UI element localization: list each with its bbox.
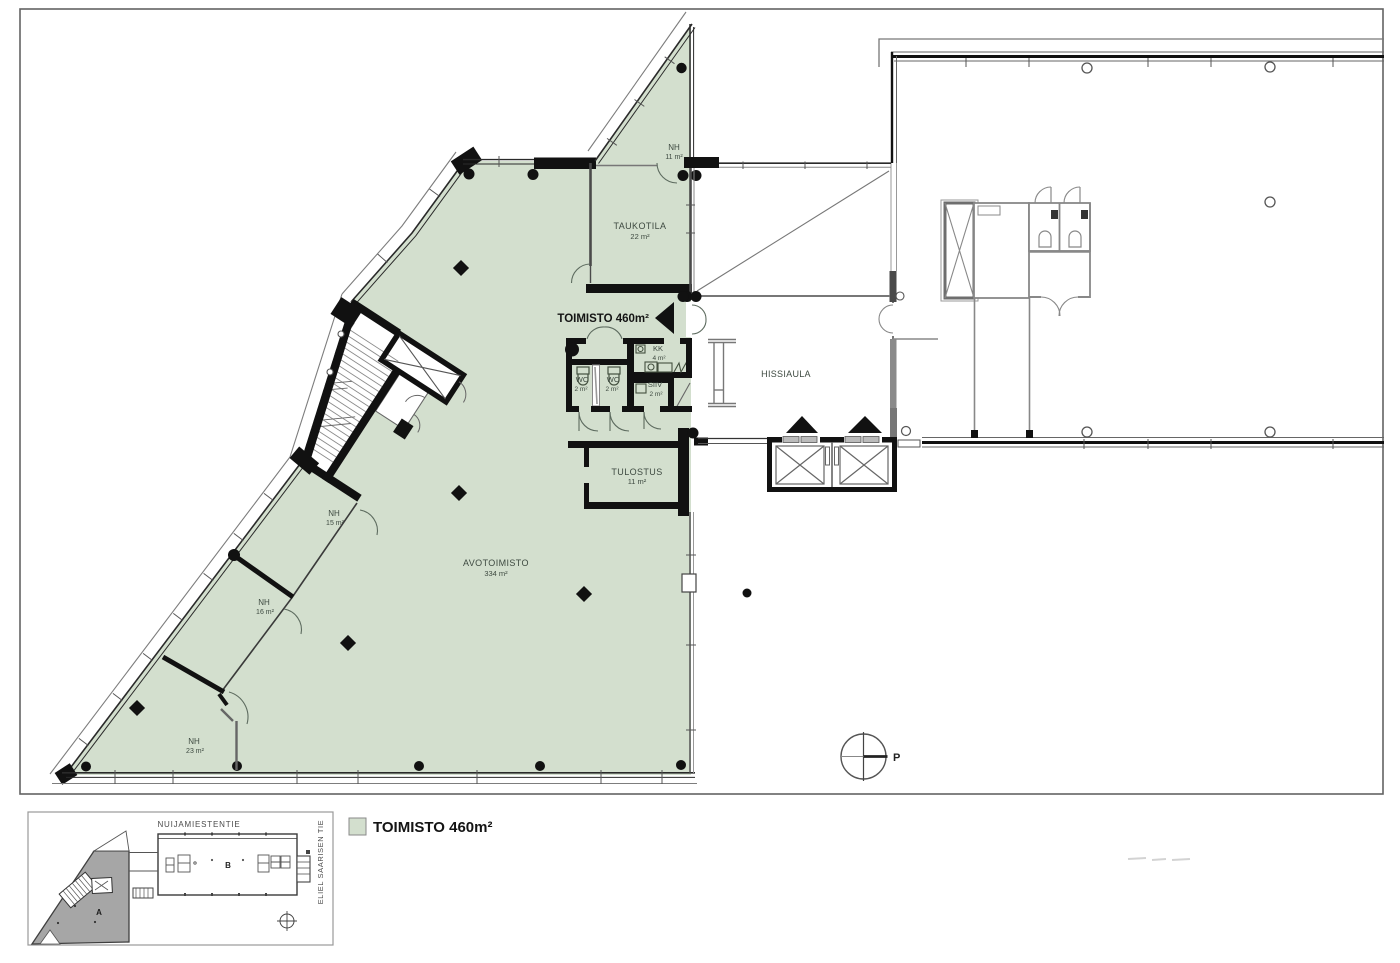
- svg-text:11 m²: 11 m²: [628, 477, 647, 486]
- svg-text:WC: WC: [607, 375, 620, 384]
- svg-text:NH: NH: [668, 143, 680, 152]
- svg-text:P: P: [893, 752, 900, 764]
- svg-text:16 m²: 16 m²: [256, 609, 275, 616]
- svg-text:NH: NH: [188, 737, 200, 746]
- svg-text:ELIEL SAARISEN TIE: ELIEL SAARISEN TIE: [316, 820, 325, 905]
- svg-text:AVOTOIMISTO: AVOTOIMISTO: [463, 558, 529, 568]
- svg-text:334 m²: 334 m²: [484, 569, 508, 578]
- svg-text:HISSIAULA: HISSIAULA: [761, 369, 811, 379]
- svg-text:2 m²: 2 m²: [650, 391, 664, 398]
- svg-text:KK: KK: [653, 344, 663, 353]
- svg-text:4 m²: 4 m²: [653, 355, 667, 362]
- svg-text:TAUKOTILA: TAUKOTILA: [614, 221, 667, 231]
- svg-text:WC: WC: [576, 375, 589, 384]
- svg-text:2 m²: 2 m²: [575, 386, 589, 393]
- svg-text:22 m²: 22 m²: [630, 232, 650, 241]
- svg-text:TOIMISTO 460m²: TOIMISTO 460m²: [373, 819, 492, 836]
- svg-text:11 m²: 11 m²: [665, 154, 683, 161]
- svg-text:NH: NH: [258, 598, 270, 607]
- svg-text:TOIMISTO 460m²: TOIMISTO 460m²: [557, 313, 649, 325]
- svg-text:15 m²: 15 m²: [326, 520, 345, 527]
- svg-text:2 m²: 2 m²: [606, 386, 620, 393]
- svg-text:TULOSTUS: TULOSTUS: [611, 467, 662, 477]
- svg-text:B: B: [225, 861, 231, 870]
- svg-text:23 m²: 23 m²: [186, 748, 205, 755]
- svg-text:NUIJAMIESTENTIE: NUIJAMIESTENTIE: [157, 820, 240, 829]
- svg-text:SIIV: SIIV: [648, 380, 662, 389]
- svg-text:A: A: [96, 908, 102, 917]
- svg-text:NH: NH: [328, 509, 340, 518]
